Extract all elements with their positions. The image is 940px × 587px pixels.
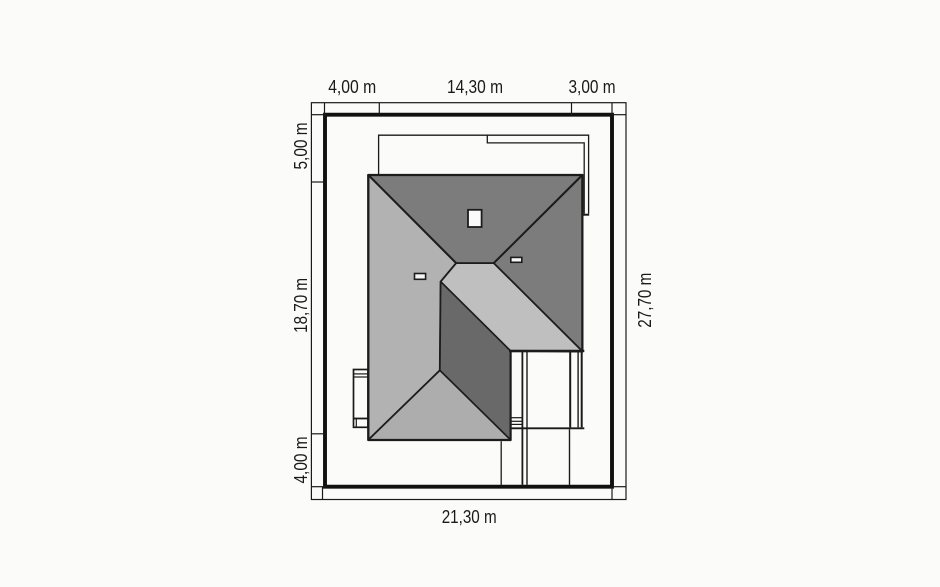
svg-text:27,70 m: 27,70 m bbox=[634, 273, 655, 328]
svg-text:4,00 m: 4,00 m bbox=[328, 76, 376, 97]
svg-text:3,00 m: 3,00 m bbox=[569, 76, 616, 97]
svg-text:14,30 m: 14,30 m bbox=[447, 76, 503, 97]
svg-text:4,00 m: 4,00 m bbox=[290, 437, 311, 484]
svg-text:18,70 m: 18,70 m bbox=[290, 278, 311, 333]
svg-text:5,00 m: 5,00 m bbox=[290, 123, 311, 170]
svg-text:21,30 m: 21,30 m bbox=[442, 506, 497, 527]
